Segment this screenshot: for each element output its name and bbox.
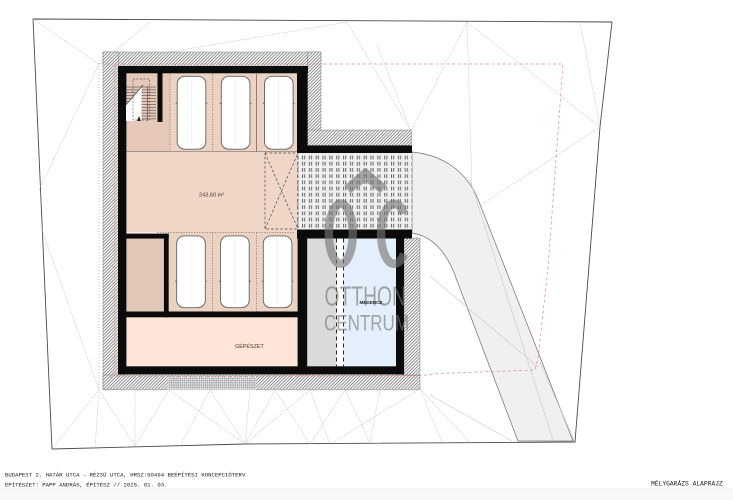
svg-text:BUDAPEST 2. HATÁR UTCA - RÉZSŰ: BUDAPEST 2. HATÁR UTCA - RÉZSŰ UTCA, HRS… [5, 472, 246, 479]
svg-text:243,60 m²: 243,60 m² [199, 193, 224, 199]
svg-text:GÉPÉSZET: GÉPÉSZET [235, 343, 264, 350]
svg-text:CENTRUM: CENTRUM [324, 311, 409, 336]
svg-text:OTTHON: OTTHON [325, 281, 407, 312]
svg-text:MEDENCE: MEDENCE [360, 300, 383, 305]
svg-text:MÉLYGARÁZS ALAPRAJZ: MÉLYGARÁZS ALAPRAJZ [651, 480, 723, 488]
svg-text:ÉPÍTÉSZET: PAPP ANDRÁS, ÉPÍTÉS: ÉPÍTÉSZET: PAPP ANDRÁS, ÉPÍTÉSZ // 2025.… [5, 482, 167, 489]
